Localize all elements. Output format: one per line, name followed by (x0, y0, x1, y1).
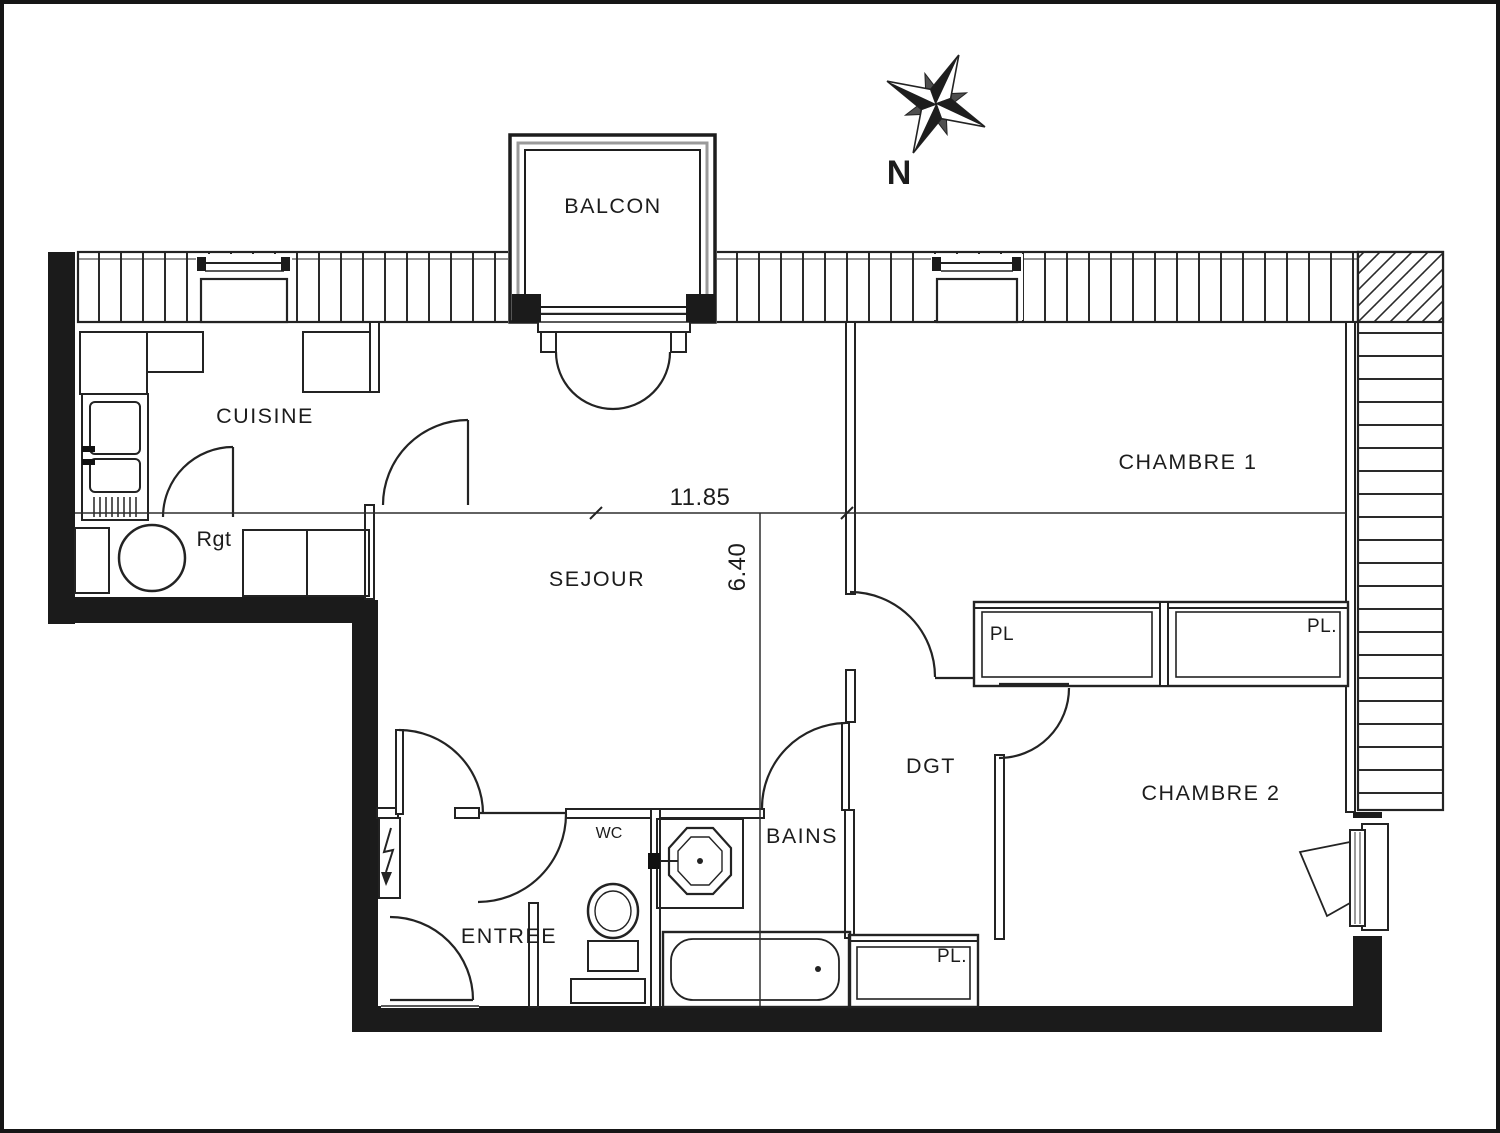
label-chambre1: CHAMBRE 1 (1119, 450, 1258, 474)
label-wc: WC (596, 825, 623, 842)
label-cuisine: CUISINE (216, 404, 314, 428)
chambre-east-inner-wall (1346, 322, 1355, 812)
dimension-width: 11.85 (670, 484, 731, 511)
floor-plan-drawing: BALCON CUISINE CHAMBRE 1 SEJOUR CHAMBRE … (0, 0, 1500, 1133)
floor-plan-page: BALCON CUISINE CHAMBRE 1 SEJOUR CHAMBRE … (0, 0, 1500, 1133)
label-entree: ENTREE (461, 924, 557, 948)
label-chambre2: CHAMBRE 2 (1142, 781, 1281, 805)
label-dgt: DGT (906, 754, 956, 778)
compass-north-label: N (887, 154, 912, 192)
entree-sejour-door-leaf (396, 730, 403, 814)
label-pl-chambre1-right: PL. (1307, 616, 1337, 637)
label-pl-dgt: PL. (937, 946, 967, 967)
label-pl-chambre1-left: PL (990, 624, 1014, 645)
label-rgt: Rgt (197, 527, 232, 551)
chambre1-window (931, 254, 1023, 322)
dimension-depth: 6.40 (724, 543, 751, 592)
label-sejour: SEJOUR (549, 567, 645, 591)
closet-row-chambre1 (974, 602, 1348, 686)
label-bains: BAINS (766, 824, 838, 848)
label-balcon: BALCON (564, 194, 661, 218)
kitchen-window (196, 254, 292, 322)
bains-door-leaf (842, 723, 849, 810)
